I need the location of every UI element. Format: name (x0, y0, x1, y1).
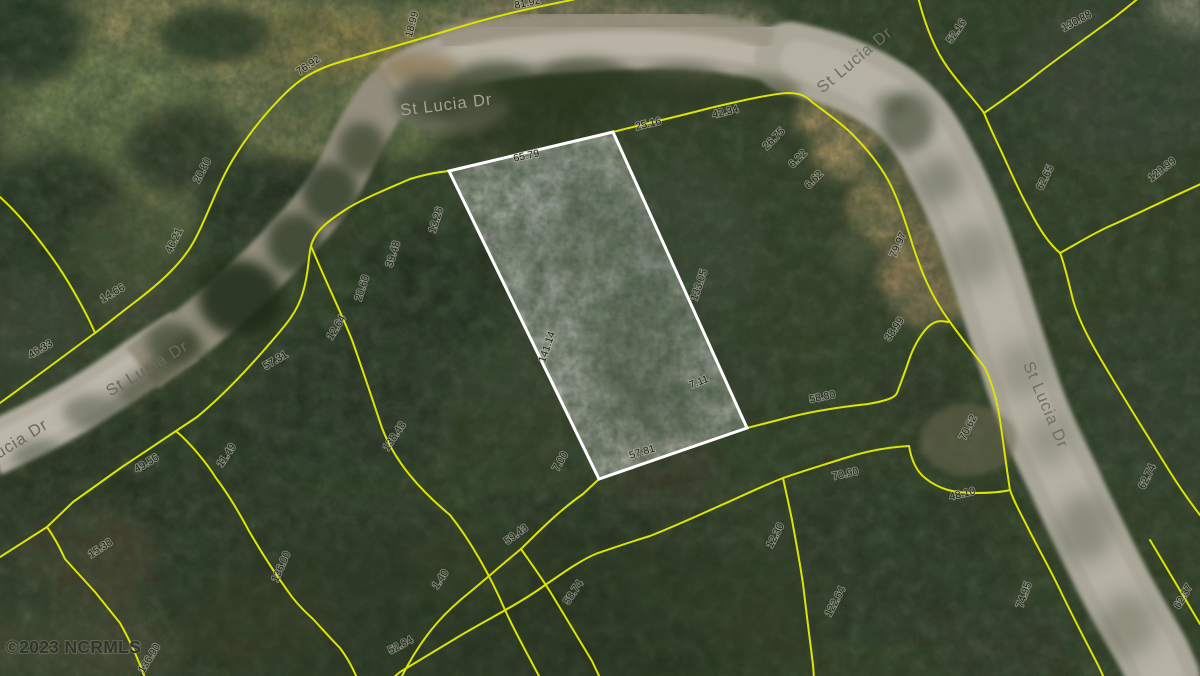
svg-text:©2023 NCRMLS: ©2023 NCRMLS (6, 637, 141, 657)
